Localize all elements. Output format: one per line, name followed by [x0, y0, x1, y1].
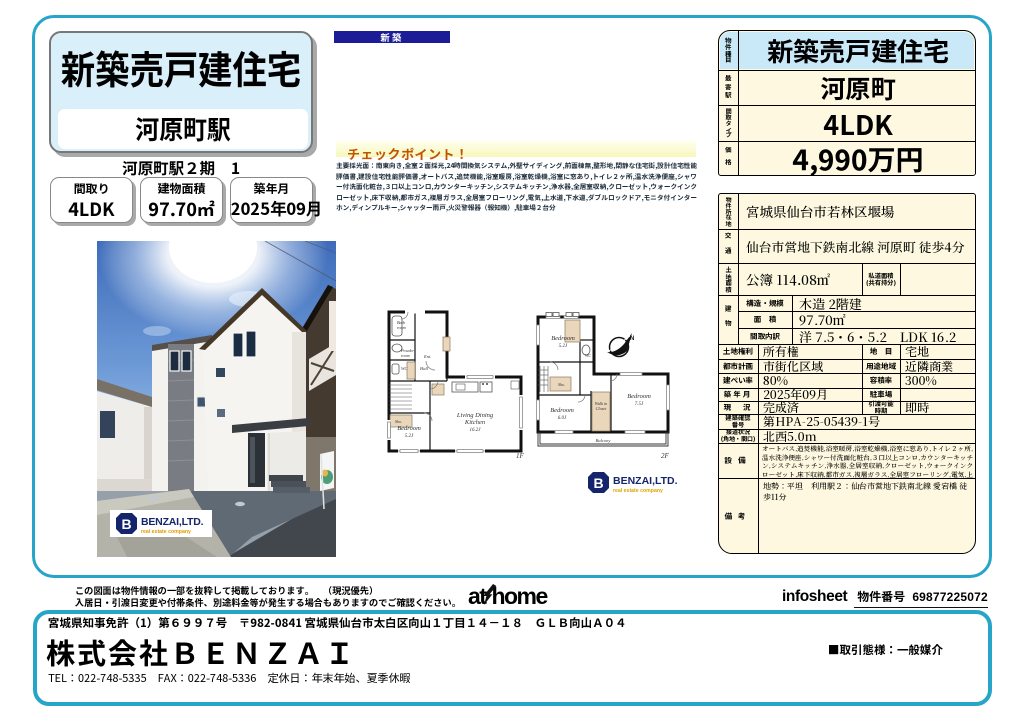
svg-text:BENZAI,LTD.: BENZAI,LTD.	[613, 475, 678, 487]
svg-text:Closet: Closet	[596, 406, 608, 411]
svg-text:Kitchen: Kitchen	[464, 419, 485, 426]
svg-text:WC: WC	[585, 353, 591, 358]
svg-text:room: room	[397, 325, 406, 330]
svg-text:6.0J: 6.0J	[558, 416, 567, 421]
svg-text:room: room	[401, 353, 410, 358]
svg-text:Sho.: Sho.	[395, 419, 402, 424]
svg-text:Bedroom: Bedroom	[550, 407, 574, 414]
svg-text:2F: 2F	[661, 452, 670, 460]
svg-text:Living Dining: Living Dining	[456, 412, 494, 419]
svg-text:Bedroom: Bedroom	[627, 393, 651, 400]
svg-text:real estate company: real estate company	[613, 488, 663, 494]
svg-text:Sho.: Sho.	[558, 382, 565, 387]
svg-text:5.2J: 5.2J	[405, 434, 414, 439]
svg-text:16.2J: 16.2J	[470, 428, 482, 433]
svg-text:Bedroom: Bedroom	[551, 335, 575, 342]
svg-text:1F: 1F	[516, 452, 525, 460]
svg-text:Balcony: Balcony	[596, 438, 611, 443]
svg-text:5.2J: 5.2J	[559, 344, 568, 349]
svg-text:WC: WC	[401, 366, 407, 371]
svg-text:B: B	[593, 475, 603, 491]
svg-text:B: B	[121, 516, 131, 532]
svg-text:Bedroom: Bedroom	[397, 425, 421, 432]
svg-text:BENZAI,LTD.: BENZAI,LTD.	[141, 516, 204, 528]
svg-text:real estate company: real estate company	[141, 529, 191, 535]
svg-text:Ent.: Ent.	[423, 354, 431, 359]
svg-text:N: N	[630, 336, 634, 342]
svg-text:Hall: Hall	[419, 366, 429, 371]
svg-text:7.5J: 7.5J	[635, 402, 644, 407]
